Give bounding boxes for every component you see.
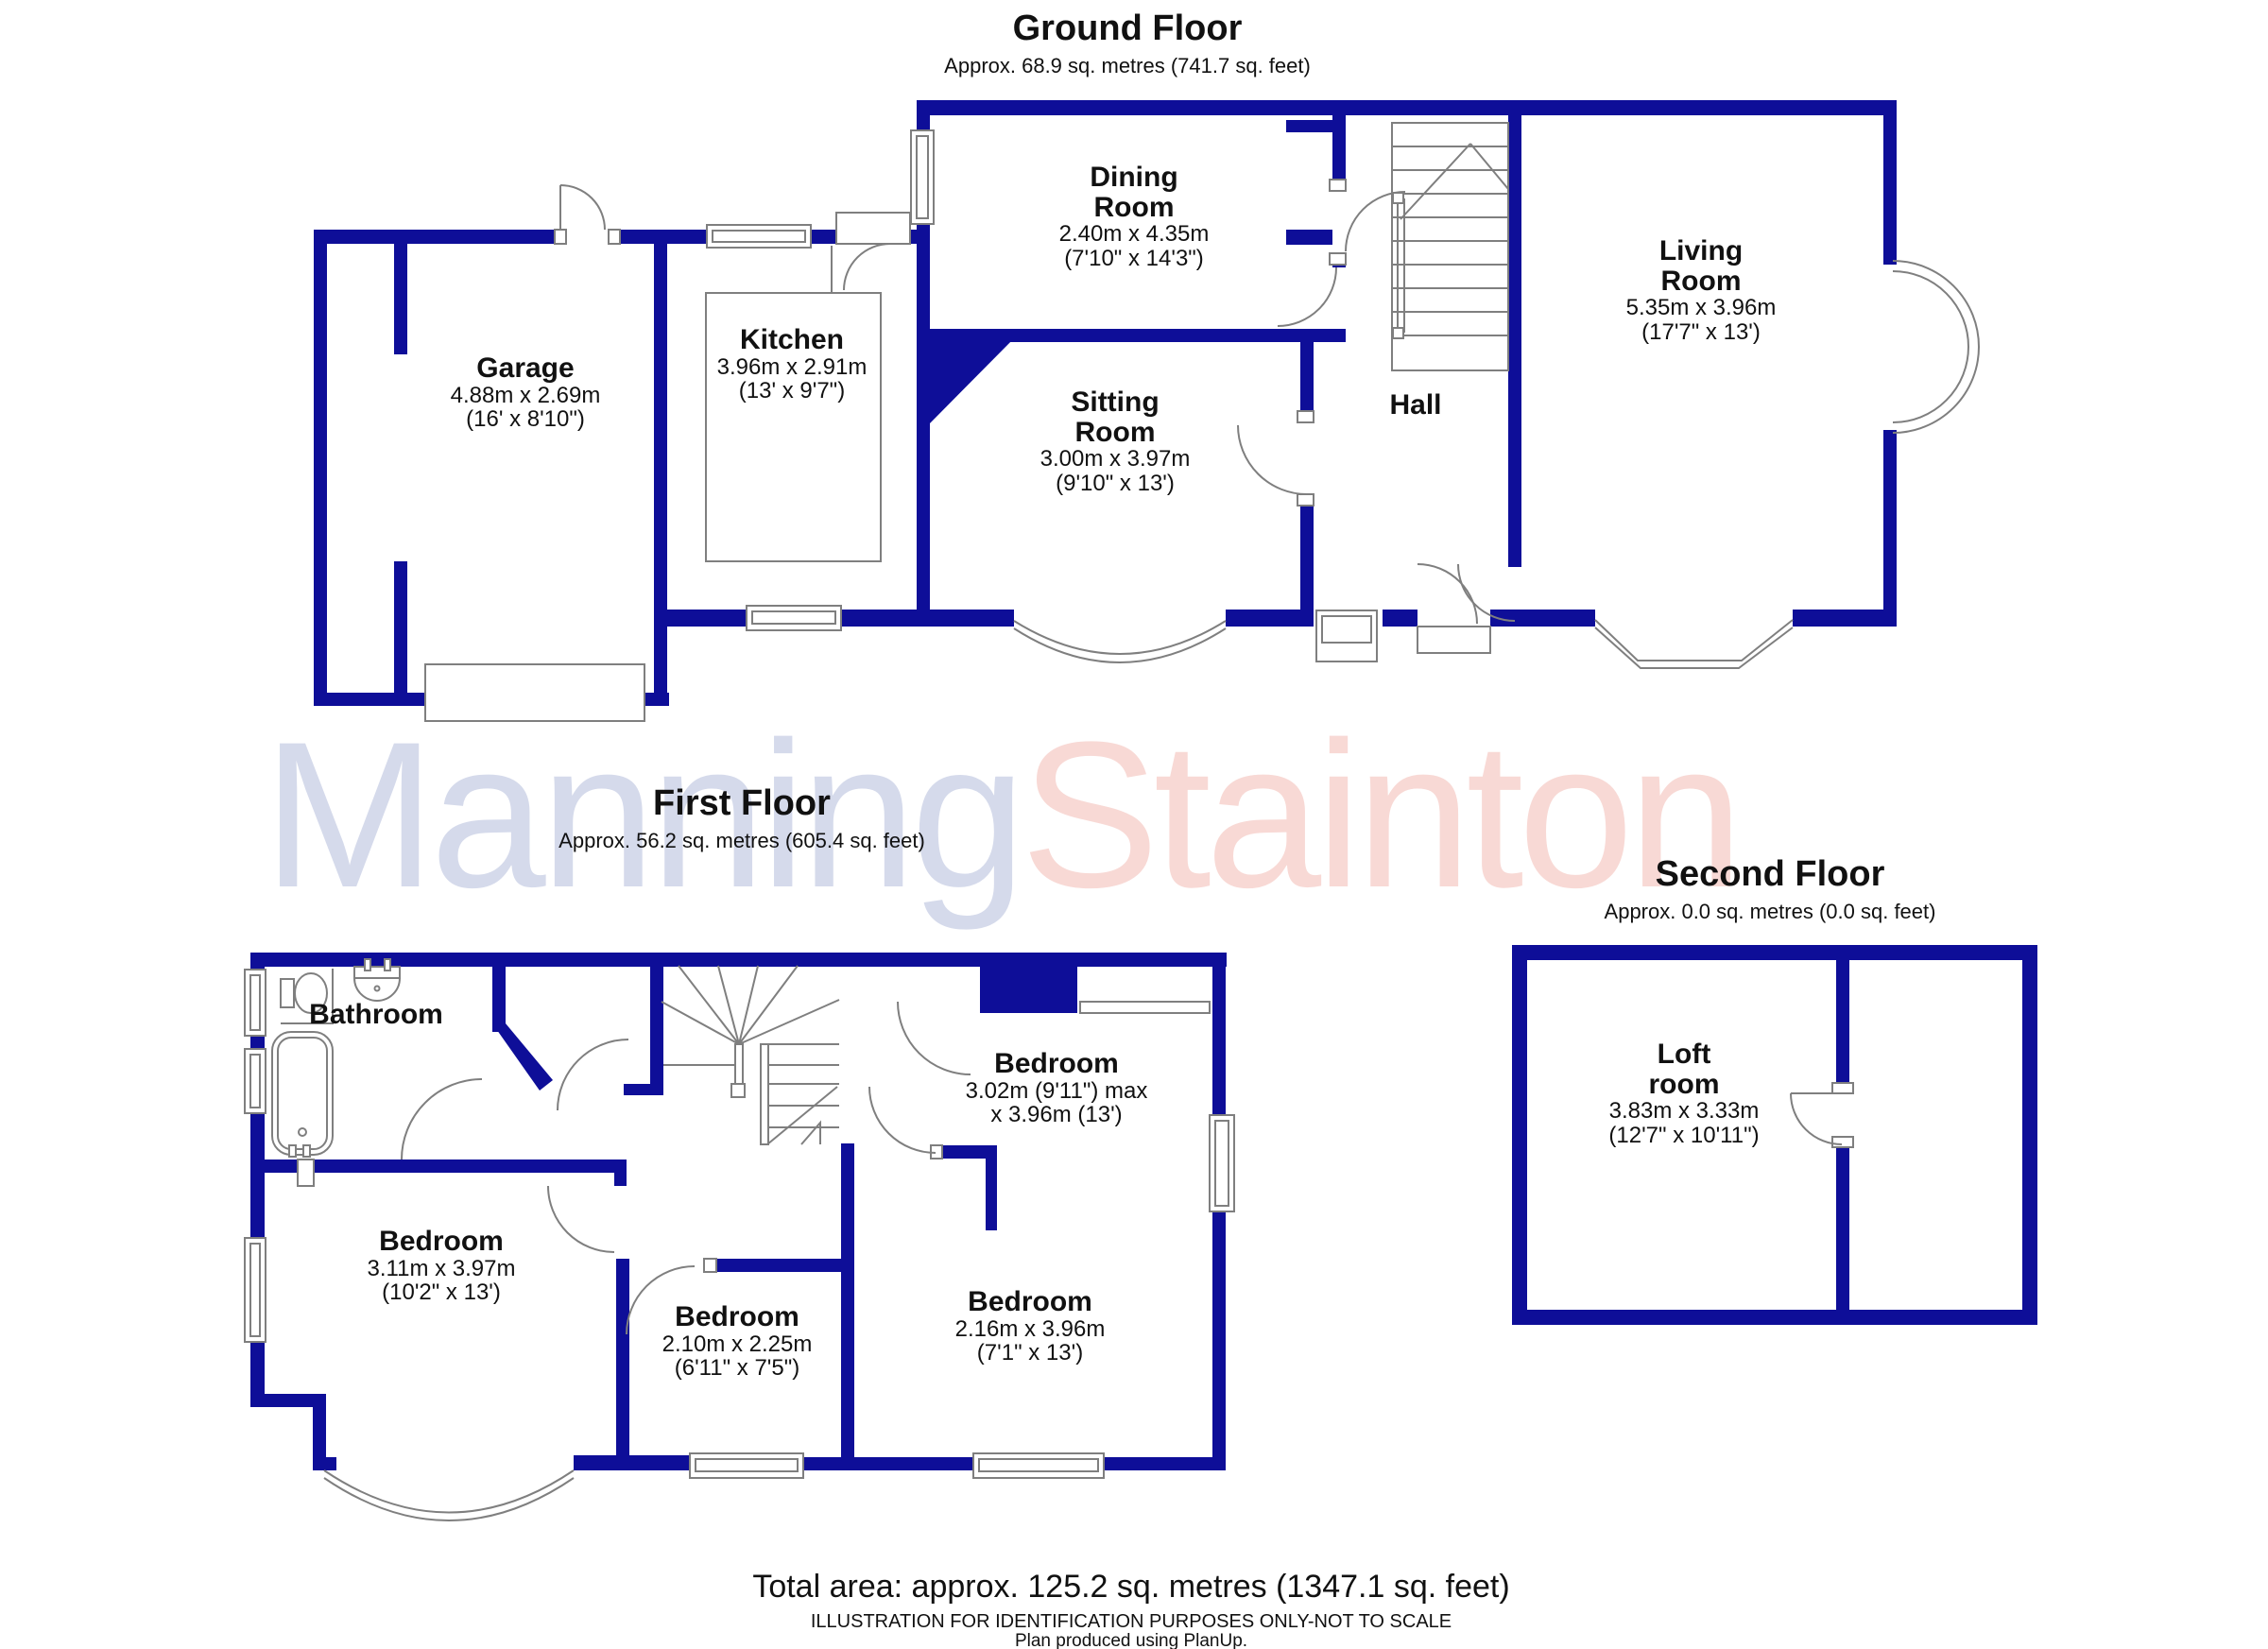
room-label-dining: Dining Room 2.40m x 4.35m (7'10" x 14'3"…: [1059, 163, 1210, 271]
floor-title: First Floor: [558, 784, 925, 824]
kitchen-back-door-arc: [844, 244, 890, 290]
garage-door: [425, 664, 644, 721]
stair-direction-arrow-first: [767, 1087, 837, 1144]
room-label-loft: Loft room 3.83m x 3.33m (12'7" x 10'11"): [1608, 1039, 1759, 1148]
ground-floor-title: Ground Floor Approx. 68.9 sq. metres (74…: [944, 9, 1311, 78]
first-floor-title: First Floor Approx. 56.2 sq. metres (605…: [558, 784, 925, 853]
stair-direction-arrow: [1400, 144, 1508, 219]
room-label-kitchen: Kitchen 3.96m x 2.91m (13' x 9'7"): [717, 325, 868, 404]
room-label-bathroom: Bathroom: [309, 1000, 443, 1030]
floor-subtitle: Approx. 56.2 sq. metres (605.4 sq. feet): [558, 829, 925, 853]
first-floor-staircase: [661, 966, 839, 1144]
second-floor-doors: [1791, 1083, 1853, 1147]
sitting-bay-window: [1014, 621, 1226, 654]
produced-by-text: Plan produced using PlanUp.: [1015, 1631, 1247, 1649]
ground-floor-doors: [560, 185, 1515, 624]
room-label-bedroom3: Bedroom 2.10m x 2.25m (6'11" x 7'5"): [662, 1302, 813, 1381]
chimney-breast-ground: [930, 333, 1020, 423]
room-label-hall: Hall: [1389, 390, 1441, 421]
second-floor-walls: [1512, 945, 2037, 1325]
second-floor-title: Second Floor Approx. 0.0 sq. metres (0.0…: [1605, 855, 1936, 924]
bathroom-fixtures: [272, 959, 400, 1157]
back-porch: [836, 213, 910, 244]
front-door-arc: [1417, 564, 1477, 624]
landing-door-arc: [402, 1079, 482, 1159]
bedroom1-door-arc: [898, 1002, 971, 1074]
garage-side-door-arc: [560, 185, 605, 230]
bathtub-icon: [272, 1032, 333, 1157]
living-bow-window: [1893, 261, 1979, 433]
built-in-wardrobe: [1080, 1002, 1210, 1013]
front-step: [1417, 627, 1490, 653]
bedroom2-bay-window: [324, 1470, 574, 1513]
floor-title: Second Floor: [1605, 855, 1936, 895]
room-label-garage: Garage 4.88m x 2.69m (16' x 8'10"): [451, 353, 601, 432]
floor-subtitle: Approx. 68.9 sq. metres (741.7 sq. feet): [944, 54, 1311, 78]
room-label-bedroom2: Bedroom 3.11m x 3.97m (10'2" x 13'): [368, 1227, 516, 1305]
first-floor-walls: [250, 953, 1227, 1470]
sitting-room-door-arc: [1238, 425, 1307, 494]
chimney-breast-first: [980, 966, 1077, 1013]
floor-title: Ground Floor: [944, 9, 1311, 49]
total-area-text: Total area: approx. 125.2 sq. metres (13…: [752, 1569, 1509, 1606]
floor-subtitle: Approx. 0.0 sq. metres (0.0 sq. feet): [1605, 900, 1936, 924]
bathroom-angled-wall: [492, 1023, 553, 1091]
room-label-bedroom4: Bedroom 2.16m x 3.96m (7'1" x 13'): [955, 1287, 1106, 1366]
ground-floor-staircase: [1392, 123, 1508, 370]
second-floor-plan: [1512, 945, 2037, 1325]
first-floor-bay-window: [324, 1470, 574, 1520]
bedroom2-door-arc: [548, 1186, 614, 1252]
room-label-bedroom1: Bedroom 3.02m (9'11") max x 3.96m (13'): [966, 1049, 1148, 1127]
room-label-living: Living Room 5.35m x 3.96m (17'7" x 13'): [1626, 236, 1777, 345]
room-label-sitting: Sitting Room 3.00m x 3.97m (9'10" x 13'): [1040, 387, 1191, 496]
disclaimer-text: ILLUSTRATION FOR IDENTIFICATION PURPOSES…: [811, 1611, 1452, 1633]
bathroom-door-arc: [558, 1039, 628, 1110]
floorplan-page: ManningStainton: [0, 0, 2268, 1649]
bedroom4-door-arc: [869, 1087, 936, 1153]
hall-lobby-door-arc: [1278, 267, 1336, 326]
